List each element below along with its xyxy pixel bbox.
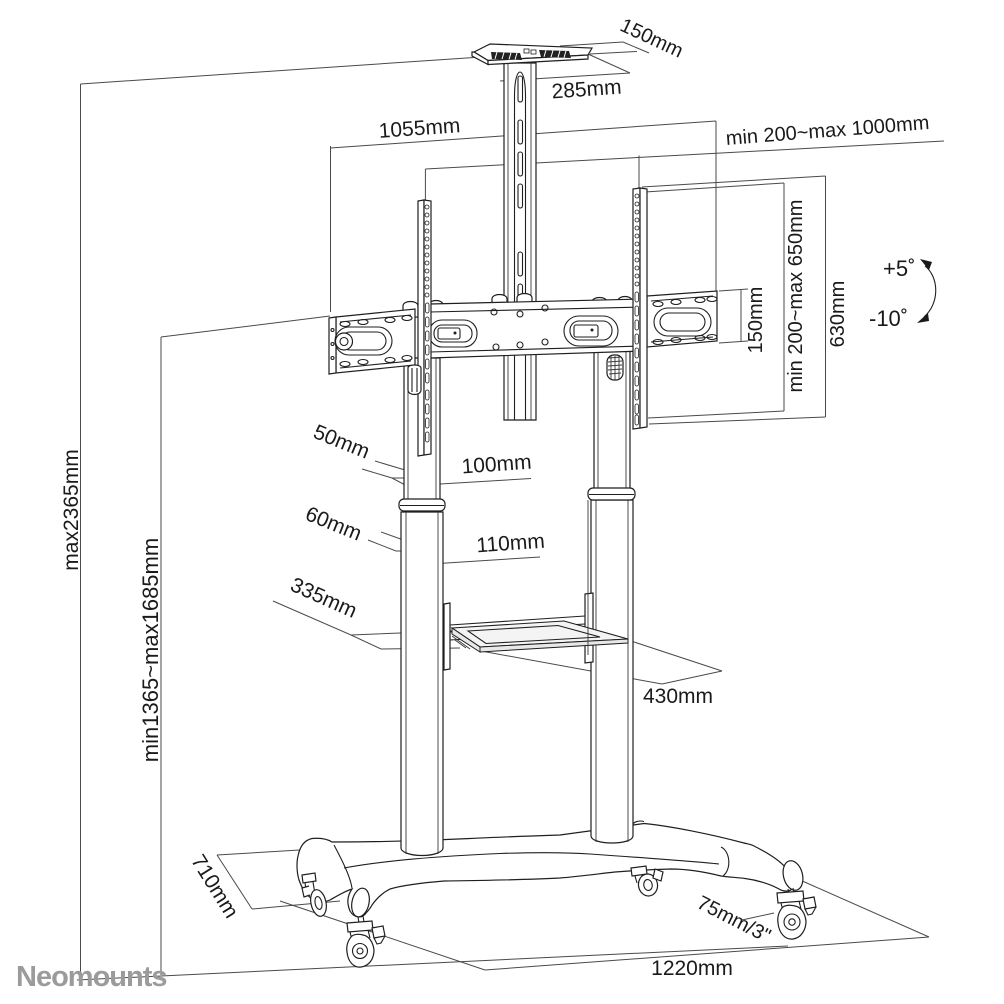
svg-text:+5˚: +5˚	[883, 256, 915, 281]
svg-text:430mm: 430mm	[643, 685, 713, 708]
svg-text:150mm: 150mm	[745, 287, 767, 354]
svg-text:-10˚: -10˚	[869, 306, 908, 331]
svg-text:min 200~max 650mm: min 200~max 650mm	[785, 200, 807, 393]
svg-text:110mm: 110mm	[476, 530, 546, 558]
svg-text:Neomounts: Neomounts	[16, 961, 167, 993]
svg-text:min1365~max1685mm: min1365~max1685mm	[138, 538, 163, 762]
svg-text:100mm: 100mm	[461, 451, 532, 479]
svg-text:max2365mm: max2365mm	[60, 449, 83, 570]
svg-text:630mm: 630mm	[827, 281, 849, 348]
svg-text:1220mm: 1220mm	[651, 957, 733, 980]
svg-text:285mm: 285mm	[551, 76, 622, 104]
